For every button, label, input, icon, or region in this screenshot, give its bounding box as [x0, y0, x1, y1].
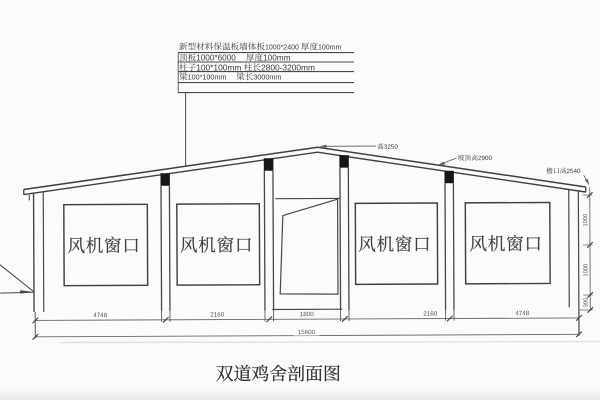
svg-text:2160: 2160	[210, 312, 225, 319]
svg-text:2540: 2540	[567, 168, 582, 175]
svg-text:100mm: 100mm	[263, 54, 290, 63]
svg-text:2800-3200mm: 2800-3200mm	[261, 62, 315, 72]
svg-text:1000*6000: 1000*6000	[196, 54, 236, 63]
svg-text:1000: 1000	[583, 214, 589, 227]
svg-text:1800: 1800	[300, 311, 315, 318]
svg-text:15600: 15600	[298, 329, 316, 336]
svg-text:300: 300	[584, 298, 590, 308]
svg-text:2160: 2160	[423, 311, 438, 318]
svg-text:4748: 4748	[93, 312, 108, 319]
svg-text:2900: 2900	[478, 155, 493, 162]
svg-text:3000mm: 3000mm	[253, 73, 281, 82]
svg-text:100mm: 100mm	[318, 45, 342, 52]
svg-text:4748: 4748	[515, 310, 530, 317]
svg-text:1000*2400: 1000*2400	[265, 45, 299, 52]
svg-text:100*100mm: 100*100mm	[196, 62, 241, 72]
svg-text:100*100mm: 100*100mm	[188, 73, 227, 82]
svg-text:3250: 3250	[384, 144, 399, 151]
svg-text:1000: 1000	[583, 264, 589, 277]
